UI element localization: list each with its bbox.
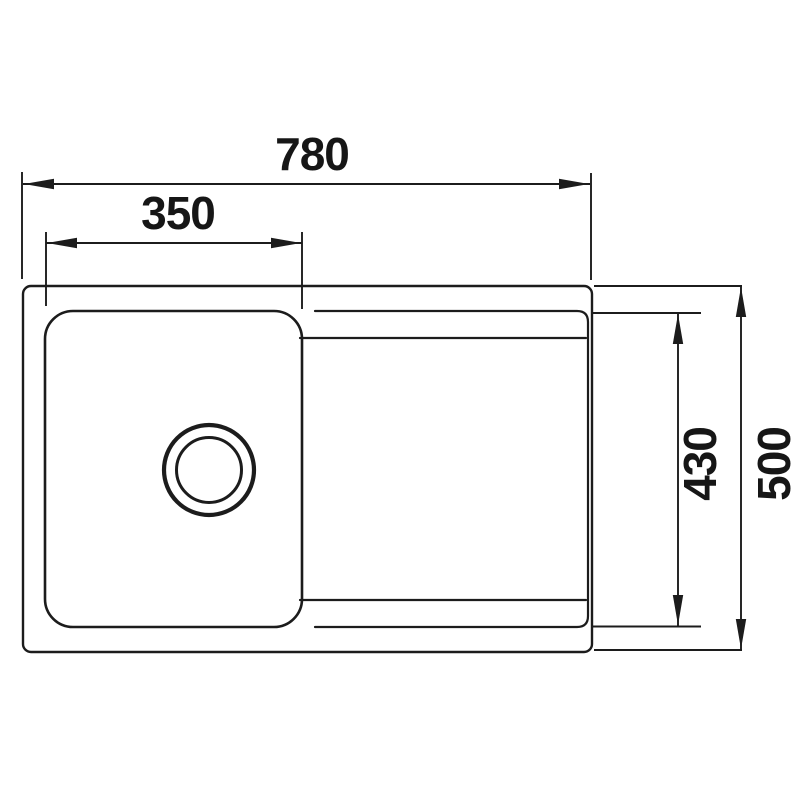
dimension-label-500: 500 xyxy=(748,427,800,501)
arrow-up-icon xyxy=(673,314,683,344)
arrow-right-icon xyxy=(559,179,589,189)
sink-technical-drawing-page: 780 350 430 500 xyxy=(0,0,800,800)
dimension-label-350: 350 xyxy=(141,187,215,239)
arrow-left-icon xyxy=(47,238,77,248)
arrow-down-icon xyxy=(736,619,746,649)
sink-body xyxy=(23,286,592,652)
arrow-right-icon xyxy=(271,238,301,248)
dimension-label-430: 430 xyxy=(674,427,726,501)
dim-bowl-width: 350 xyxy=(46,187,302,309)
bowl-outline xyxy=(45,311,302,627)
dimension-label-780: 780 xyxy=(275,128,349,180)
sink-technical-drawing: 780 350 430 500 xyxy=(0,0,800,800)
arrow-down-icon xyxy=(673,595,683,625)
drain-inner-circle xyxy=(177,438,242,503)
arrow-up-icon xyxy=(736,287,746,317)
arrow-left-icon xyxy=(24,179,54,189)
deck-inner-edge xyxy=(315,311,588,627)
dim-overall-width: 780 xyxy=(22,128,591,280)
dim-inner-depth: 430 xyxy=(592,313,726,627)
sink-rim-outline xyxy=(23,286,592,652)
